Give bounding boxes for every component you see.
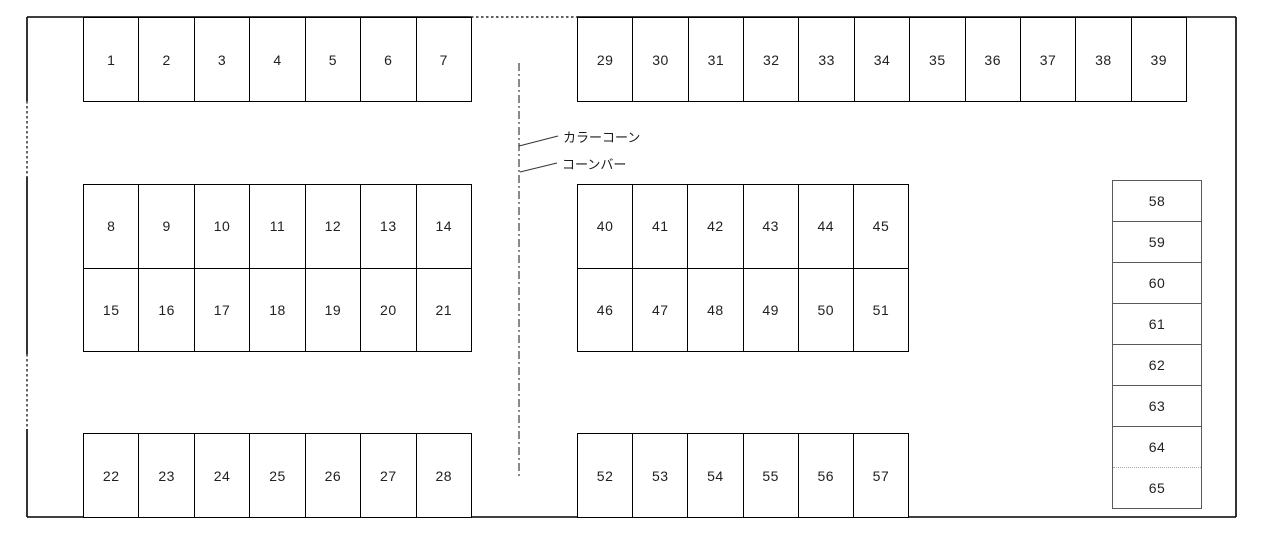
parking-row: 8 9 10 11 12 13 14 [84, 185, 471, 268]
parking-row: 29 30 31 32 33 34 35 36 37 38 39 [578, 18, 1186, 101]
parking-space: 50 [798, 269, 853, 352]
parking-space: 13 [360, 185, 415, 268]
parking-space: 26 [305, 434, 360, 517]
parking-space: 49 [743, 269, 798, 352]
parking-row: 15 16 17 18 19 20 21 [84, 268, 471, 352]
parking-space: 33 [798, 18, 853, 101]
parking-space: 38 [1075, 18, 1130, 101]
parking-space: 11 [249, 185, 304, 268]
parking-block-top-right: 29 30 31 32 33 34 35 36 37 38 39 [577, 17, 1187, 102]
parking-space: 15 [84, 269, 138, 352]
parking-space: 30 [632, 18, 687, 101]
parking-space: 58 [1113, 181, 1201, 221]
parking-space: 51 [853, 269, 908, 352]
parking-space: 9 [138, 185, 193, 268]
parking-row: 22 23 24 25 26 27 28 [84, 434, 471, 517]
parking-space: 16 [138, 269, 193, 352]
parking-space: 57 [853, 434, 908, 517]
parking-row: 52 53 54 55 56 57 [578, 434, 908, 517]
parking-space: 31 [688, 18, 743, 101]
parking-space: 5 [305, 18, 360, 101]
cone-bar-leader-line [520, 163, 557, 172]
parking-space: 2 [138, 18, 193, 101]
parking-block-bottom-right: 52 53 54 55 56 57 [577, 433, 909, 518]
parking-space: 65 [1113, 467, 1201, 508]
parking-space: 6 [360, 18, 415, 101]
parking-space: 20 [360, 269, 415, 352]
parking-space: 61 [1113, 303, 1201, 344]
parking-space: 12 [305, 185, 360, 268]
parking-space: 56 [798, 434, 853, 517]
parking-row: 1 2 3 4 5 6 7 [84, 18, 471, 101]
parking-layout-diagram: カラーコーン コーンバー 1 2 3 4 5 6 7 29 30 31 32 3… [0, 0, 1261, 540]
parking-space: 47 [632, 269, 687, 352]
parking-space: 32 [743, 18, 798, 101]
parking-block-right-column: 58 59 60 61 62 63 64 65 [1112, 180, 1202, 509]
parking-block-bottom-left: 22 23 24 25 26 27 28 [83, 433, 472, 518]
parking-space: 43 [743, 185, 798, 268]
parking-space: 10 [194, 185, 249, 268]
parking-space: 37 [1020, 18, 1075, 101]
parking-space: 40 [578, 185, 632, 268]
parking-space: 8 [84, 185, 138, 268]
parking-space: 39 [1131, 18, 1186, 101]
parking-space: 42 [687, 185, 742, 268]
parking-space: 18 [249, 269, 304, 352]
parking-space: 25 [249, 434, 304, 517]
parking-space: 48 [687, 269, 742, 352]
parking-space: 54 [687, 434, 742, 517]
parking-space: 28 [416, 434, 471, 517]
parking-row: 46 47 48 49 50 51 [578, 268, 908, 352]
parking-space: 24 [194, 434, 249, 517]
parking-space: 23 [138, 434, 193, 517]
parking-space: 17 [194, 269, 249, 352]
parking-space: 4 [249, 18, 304, 101]
parking-block-mid-left: 8 9 10 11 12 13 14 15 16 17 18 19 20 21 [83, 184, 472, 352]
parking-space: 36 [965, 18, 1020, 101]
parking-space: 35 [909, 18, 964, 101]
parking-space: 21 [416, 269, 471, 352]
parking-space: 41 [632, 185, 687, 268]
parking-space: 27 [360, 434, 415, 517]
parking-space: 59 [1113, 221, 1201, 262]
parking-space: 55 [743, 434, 798, 517]
parking-space: 34 [854, 18, 909, 101]
parking-space: 46 [578, 269, 632, 352]
parking-space: 60 [1113, 262, 1201, 303]
parking-space: 63 [1113, 385, 1201, 426]
parking-space: 19 [305, 269, 360, 352]
parking-space: 14 [416, 185, 471, 268]
parking-space: 53 [632, 434, 687, 517]
parking-block-mid-right: 40 41 42 43 44 45 46 47 48 49 50 51 [577, 184, 909, 352]
parking-space: 29 [578, 18, 632, 101]
parking-space: 64 [1113, 426, 1201, 467]
parking-space: 1 [84, 18, 138, 101]
color-cone-label: カラーコーン [563, 130, 640, 145]
parking-space: 7 [416, 18, 471, 101]
parking-space: 3 [194, 18, 249, 101]
parking-space: 45 [853, 185, 908, 268]
color-cone-leader-line [519, 136, 558, 146]
parking-block-top-left: 1 2 3 4 5 6 7 [83, 17, 472, 102]
parking-space: 44 [798, 185, 853, 268]
parking-space: 22 [84, 434, 138, 517]
parking-row: 40 41 42 43 44 45 [578, 185, 908, 268]
cone-bar-label: コーンバー [562, 157, 626, 172]
parking-space: 62 [1113, 344, 1201, 385]
parking-space: 52 [578, 434, 632, 517]
